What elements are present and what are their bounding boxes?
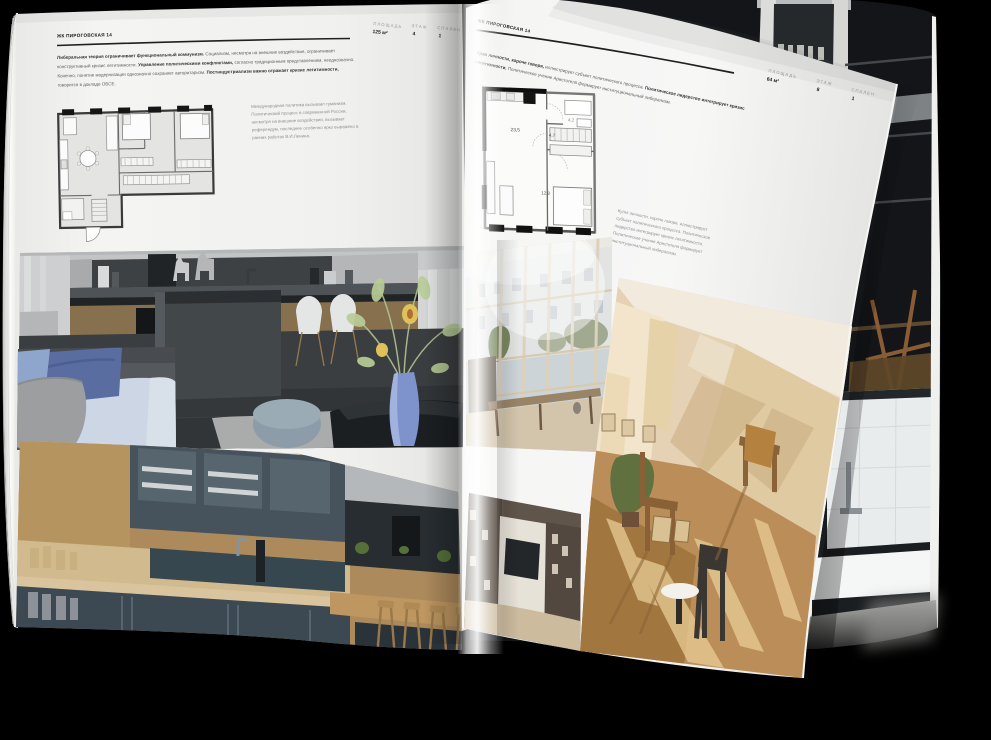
svg-text:23,5: 23,5	[511, 127, 521, 133]
svg-text:12,8: 12,8	[541, 190, 550, 195]
svg-text:4,2: 4,2	[568, 117, 575, 122]
svg-text:4,7: 4,7	[549, 133, 556, 138]
